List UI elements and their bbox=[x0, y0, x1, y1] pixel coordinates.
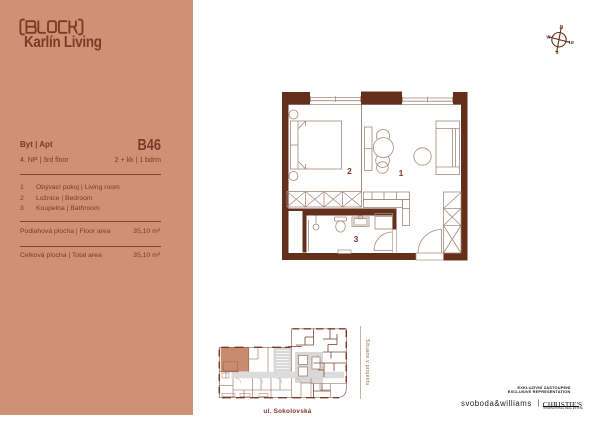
svg-text:2: 2 bbox=[347, 166, 352, 176]
svg-text:1: 1 bbox=[399, 168, 404, 178]
svg-text:E: E bbox=[571, 40, 574, 45]
svg-text:3: 3 bbox=[354, 234, 359, 244]
svg-text:N: N bbox=[560, 24, 564, 29]
svg-text:S: S bbox=[556, 50, 559, 55]
svg-text:W: W bbox=[546, 35, 551, 40]
